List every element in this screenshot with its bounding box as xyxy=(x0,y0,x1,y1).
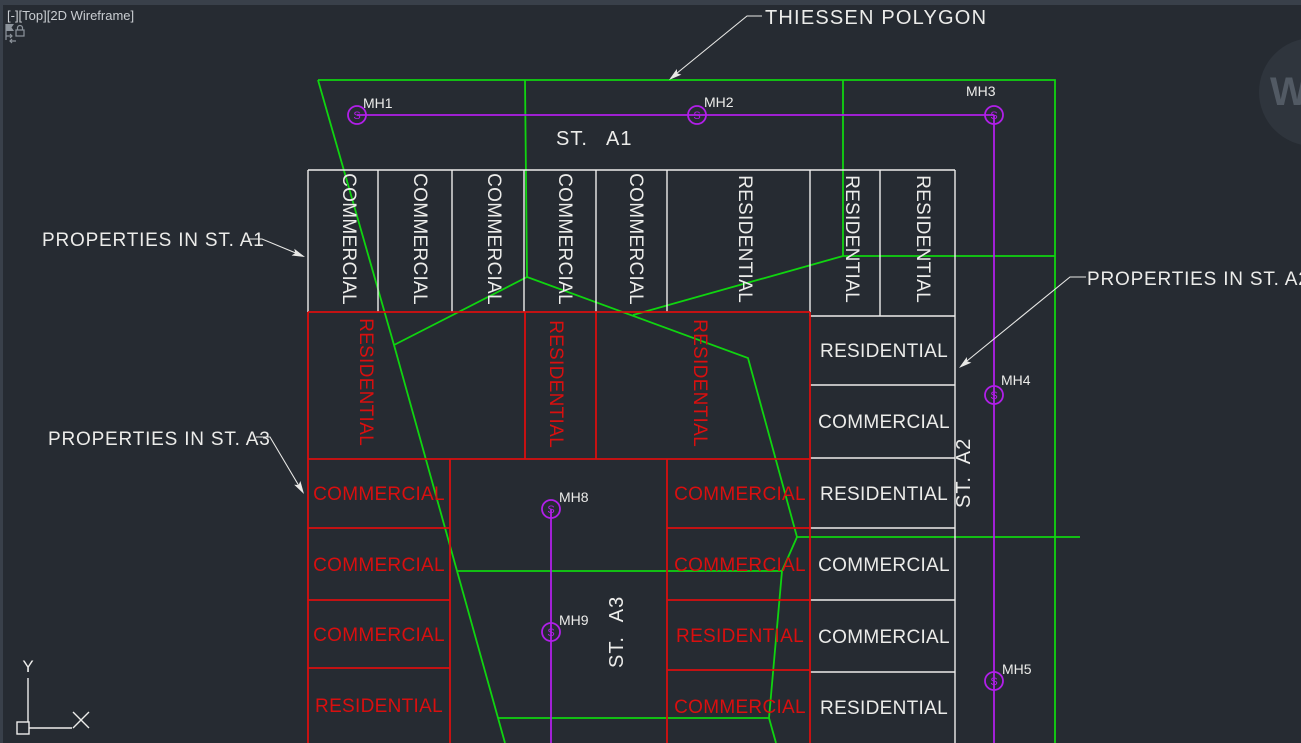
parcel-label[interactable]: COMMERCIAL xyxy=(674,697,806,718)
manhole-id: MH1 xyxy=(363,95,393,111)
parcel-label[interactable]: COMMERCIAL xyxy=(483,173,504,305)
parcel-label[interactable]: RESIDENTIAL xyxy=(734,175,755,303)
parcel-label[interactable]: RESIDENTIAL xyxy=(912,175,933,303)
street-label-a1-name[interactable]: A1 xyxy=(606,128,632,150)
properties-a2-label[interactable]: PROPERTIES IN ST. A2 xyxy=(1087,269,1301,290)
parcel-label[interactable]: COMMERCIAL xyxy=(409,173,430,305)
drawing-canvas[interactable] xyxy=(0,0,1301,743)
watermark-letter: W xyxy=(1270,70,1301,114)
parcel-label[interactable]: COMMERCIAL xyxy=(818,627,950,648)
manhole-symbol: S xyxy=(990,390,997,402)
street-label-a2-prefix[interactable]: ST. xyxy=(953,476,975,508)
parcel-label[interactable]: RESIDENTIAL xyxy=(841,175,862,303)
parcel-label[interactable]: RESIDENTIAL xyxy=(315,696,443,717)
parcel-label[interactable]: RESIDENTIAL xyxy=(820,484,948,505)
y-axis-label: Y xyxy=(22,657,33,676)
parcel-label[interactable]: COMMERCIAL xyxy=(625,173,646,305)
manhole-id: MH5 xyxy=(1002,661,1032,677)
parcel-label[interactable]: RESIDENTIAL xyxy=(820,341,948,362)
manhole-id: MH2 xyxy=(704,94,734,110)
parcel-label[interactable]: COMMERCIAL xyxy=(313,625,445,646)
properties-a3-label[interactable]: PROPERTIES IN ST. A3 xyxy=(48,429,271,450)
manhole-symbol: S xyxy=(990,676,997,688)
parcel-label[interactable]: COMMERCIAL xyxy=(554,173,575,305)
parcel-label[interactable]: COMMERCIAL xyxy=(674,555,806,576)
parcel-label[interactable]: COMMERCIAL xyxy=(313,555,445,576)
manhole-id: MH3 xyxy=(966,83,996,99)
window-top-edge xyxy=(0,0,1301,5)
manhole-symbol: S xyxy=(547,627,554,639)
manhole-id: MH8 xyxy=(559,489,589,505)
parcel-label[interactable]: RESIDENTIAL xyxy=(676,626,804,647)
parcel-label[interactable]: COMMERCIAL xyxy=(674,484,806,505)
parcel-label[interactable]: COMMERCIAL xyxy=(313,484,445,505)
manhole-symbol: S xyxy=(693,110,700,122)
manhole-symbol: S xyxy=(547,504,554,516)
parcel-label[interactable]: RESIDENTIAL xyxy=(689,319,710,447)
manhole-symbol: S xyxy=(990,110,997,122)
parcel-label[interactable]: COMMERCIAL xyxy=(818,412,950,433)
autocad-viewport[interactable]: W [-][Top][2D Wireframe] xyxy=(0,0,1301,743)
parcel-label[interactable]: COMMERCIAL xyxy=(338,173,359,305)
street-label-a3-prefix[interactable]: ST. xyxy=(606,636,628,668)
manhole-id: MH4 xyxy=(1001,372,1031,388)
parcel-label[interactable]: RESIDENTIAL xyxy=(820,698,948,719)
viewport-label[interactable]: [-][Top][2D Wireframe] xyxy=(7,8,134,23)
street-label-a3-name[interactable]: A3 xyxy=(606,596,628,622)
top-row-parcel-labels[interactable]: COMMERCIAL COMMERCIAL COMMERCIAL COMMERC… xyxy=(338,173,933,305)
window-left-edge xyxy=(0,0,3,743)
parcel-label[interactable]: COMMERCIAL xyxy=(818,555,950,576)
properties-a1-label[interactable]: PROPERTIES IN ST. A1 xyxy=(42,230,265,251)
parcel-label[interactable]: RESIDENTIAL xyxy=(545,320,566,448)
manhole-id: MH9 xyxy=(559,612,589,628)
manhole-symbol: S xyxy=(353,110,360,122)
parcel-label[interactable]: RESIDENTIAL xyxy=(355,318,376,446)
thiessen-label[interactable]: THIESSEN POLYGON xyxy=(765,7,987,29)
street-label-a1-prefix[interactable]: ST. xyxy=(556,128,588,150)
street-label-a2-name[interactable]: A2 xyxy=(953,438,975,464)
